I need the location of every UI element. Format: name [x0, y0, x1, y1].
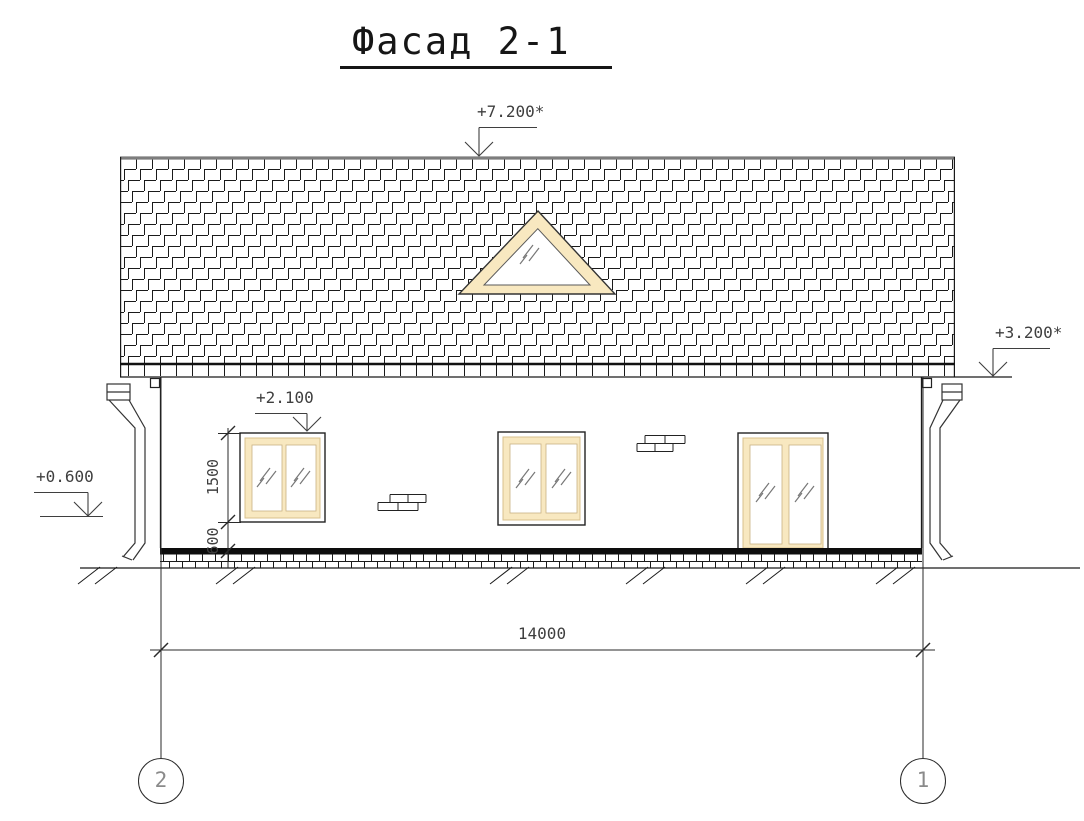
facade-drawing-canvas: Фасад 2-1 +7.200* +3.200* +2.100 +0.600 …	[0, 0, 1084, 821]
eaves-bracket-right	[923, 379, 932, 388]
brick-patch-right	[637, 436, 685, 452]
level-mark-ridge: +7.200*	[477, 104, 544, 120]
window-left	[240, 433, 325, 522]
sill-height-label: 600	[203, 511, 223, 571]
ground-line	[78, 567, 1080, 584]
level-mark-eaves: +3.200*	[995, 325, 1062, 341]
window-center	[498, 432, 585, 525]
axis-bubble-1: 1	[900, 758, 946, 804]
level-mark-window-head: +2.100	[256, 390, 314, 406]
drawing-title: Фасад 2-1	[352, 20, 570, 63]
plinth	[160, 548, 922, 568]
downspout-left	[107, 384, 145, 560]
eaves-bracket-left	[151, 379, 160, 388]
overall-width-label: 14000	[492, 626, 592, 642]
downspout-right	[930, 384, 962, 560]
window-height-label: 1500	[203, 447, 223, 507]
level-mark-plinth: +0.600	[36, 469, 94, 485]
axis-bubble-2: 2	[138, 758, 184, 804]
title-underline	[340, 66, 612, 69]
facade-linework	[0, 0, 1084, 821]
brick-patch-left	[378, 495, 426, 511]
door-right	[738, 433, 828, 551]
